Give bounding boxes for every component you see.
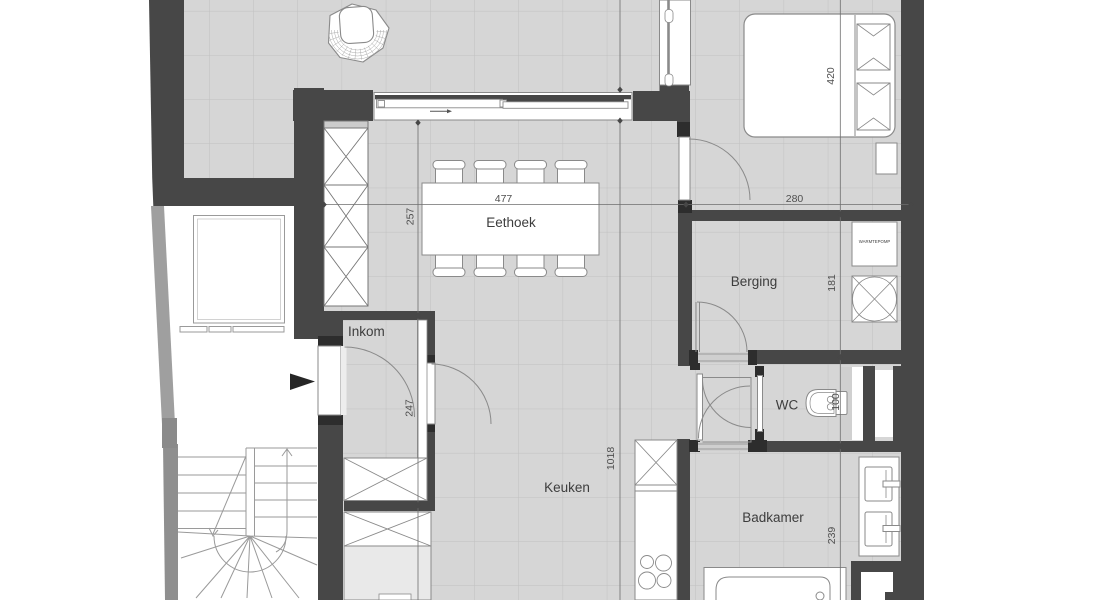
svg-text:WARMTEPOMP: WARMTEPOMP	[859, 239, 891, 244]
svg-text:100: 100	[830, 393, 842, 411]
svg-text:1018: 1018	[605, 447, 617, 471]
svg-text:257: 257	[405, 208, 417, 226]
svg-text:Badkamer: Badkamer	[742, 510, 804, 525]
svg-text:181: 181	[826, 274, 838, 292]
svg-text:Keuken: Keuken	[544, 480, 590, 495]
svg-text:Eethoek: Eethoek	[486, 215, 536, 230]
svg-text:Berging: Berging	[731, 274, 778, 289]
svg-text:WC: WC	[776, 398, 799, 413]
svg-text:280: 280	[786, 193, 804, 205]
svg-text:420: 420	[825, 67, 837, 85]
svg-text:247: 247	[404, 399, 416, 417]
svg-text:477: 477	[495, 193, 513, 205]
svg-text:239: 239	[826, 527, 838, 545]
svg-text:Inkom: Inkom	[348, 324, 385, 339]
